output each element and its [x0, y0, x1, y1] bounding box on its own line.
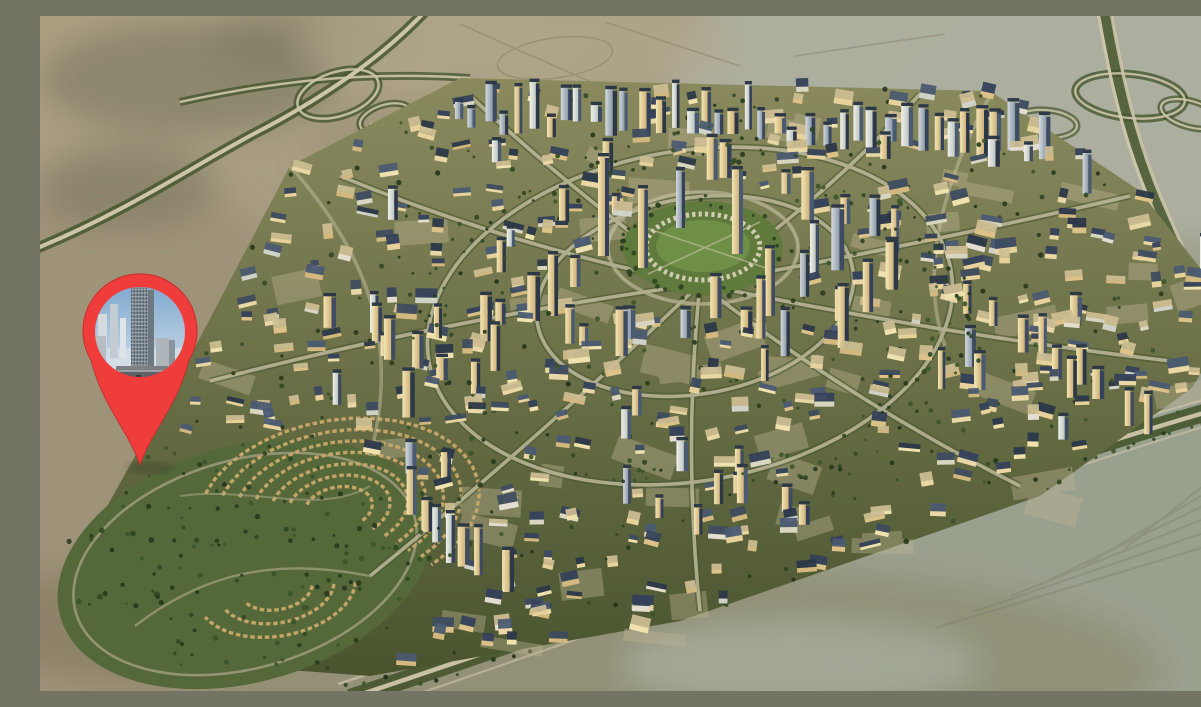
building: [530, 472, 549, 482]
building: [1175, 382, 1188, 393]
tower: [938, 347, 945, 389]
building: [350, 279, 362, 295]
tower: [974, 350, 986, 390]
building: [951, 408, 971, 423]
building: [787, 140, 808, 153]
building: [418, 215, 429, 223]
building: [507, 631, 517, 644]
tower: [432, 504, 441, 543]
building: [347, 394, 356, 408]
tower: [756, 275, 765, 338]
building: [272, 318, 287, 334]
main-tower: [131, 288, 148, 370]
building: [567, 348, 590, 364]
building: [419, 417, 431, 425]
tower: [831, 204, 844, 270]
building: [700, 367, 721, 379]
building: [517, 312, 533, 323]
tower: [388, 185, 398, 219]
tower: [838, 283, 849, 348]
building: [430, 243, 442, 256]
building: [1045, 146, 1054, 161]
tower: [598, 153, 609, 256]
tower: [407, 466, 417, 515]
tower: [761, 345, 769, 381]
building: [792, 166, 802, 178]
building: [919, 83, 937, 100]
building: [1151, 271, 1162, 287]
building: [328, 354, 340, 362]
building: [833, 89, 854, 106]
building: [1075, 395, 1090, 405]
building: [611, 169, 626, 179]
building: [209, 340, 222, 352]
tower: [455, 99, 463, 120]
building: [491, 401, 509, 411]
building: [481, 632, 494, 646]
tower: [616, 306, 628, 356]
tower: [1125, 387, 1134, 426]
tower: [732, 166, 743, 254]
building: [1185, 266, 1201, 283]
tower: [707, 134, 718, 180]
tower: [656, 96, 666, 133]
building: [999, 249, 1010, 264]
tower: [1018, 315, 1029, 353]
background-tower: [120, 318, 126, 358]
building: [453, 187, 471, 196]
tower: [801, 167, 814, 220]
building: [284, 187, 297, 197]
tower: [901, 103, 913, 147]
building: [1027, 432, 1039, 447]
tower: [559, 185, 569, 222]
tower: [619, 88, 627, 131]
building: [322, 223, 333, 239]
building: [724, 526, 743, 544]
building: [432, 258, 445, 266]
building: [878, 426, 889, 433]
building: [396, 303, 418, 319]
tower: [870, 195, 881, 237]
building: [1173, 265, 1185, 278]
building: [462, 339, 472, 353]
building: [858, 228, 870, 238]
building: [293, 363, 308, 372]
tower: [623, 465, 631, 504]
tower: [781, 307, 790, 357]
building: [898, 328, 917, 339]
tower: [384, 315, 396, 360]
tower: [676, 167, 685, 228]
tower: [714, 470, 723, 505]
tower: [960, 108, 969, 153]
building: [1036, 352, 1054, 365]
tower: [935, 113, 944, 151]
building: [747, 540, 757, 552]
building: [542, 154, 554, 165]
building: [524, 533, 539, 542]
tower: [372, 303, 382, 342]
building: [437, 110, 450, 119]
tower: [530, 79, 540, 129]
building: [1064, 315, 1081, 328]
building: [386, 233, 401, 250]
building: [968, 388, 979, 397]
building: [1045, 246, 1058, 260]
tower: [1083, 150, 1092, 194]
building: [582, 382, 595, 394]
tower: [800, 250, 809, 297]
building: [485, 588, 503, 605]
building: [777, 152, 799, 165]
building: [556, 435, 571, 449]
building: [1026, 382, 1043, 391]
tower: [434, 303, 442, 338]
building: [396, 653, 417, 667]
tower: [866, 107, 877, 148]
building: [930, 503, 946, 516]
building: [720, 340, 732, 349]
aerial-masterplan-render: [40, 16, 1201, 691]
tower: [402, 367, 414, 417]
building: [711, 564, 721, 574]
building: [366, 402, 378, 416]
building: [549, 631, 568, 643]
tower: [765, 245, 775, 316]
building: [364, 341, 376, 349]
building: [418, 467, 429, 479]
building: [1011, 386, 1029, 401]
building: [387, 287, 397, 302]
tower: [745, 81, 752, 129]
tower: [710, 273, 722, 318]
building: [639, 156, 654, 167]
building: [489, 519, 508, 527]
building: [537, 259, 547, 270]
building: [793, 93, 804, 104]
building: [632, 488, 643, 497]
building: [807, 149, 826, 160]
tower: [548, 251, 558, 316]
tower: [638, 185, 648, 268]
building: [635, 444, 645, 453]
tower: [672, 80, 679, 128]
tower: [886, 239, 898, 290]
tower: [412, 331, 424, 369]
building: [995, 461, 1011, 473]
building: [1184, 282, 1201, 290]
building: [852, 271, 863, 284]
background-building: [156, 338, 169, 368]
building: [925, 234, 938, 242]
tower: [948, 118, 959, 157]
building: [555, 221, 568, 228]
building: [937, 452, 955, 465]
tower: [474, 524, 483, 575]
tower: [497, 237, 506, 272]
building: [919, 471, 934, 487]
tower: [324, 293, 337, 328]
tower: [515, 83, 523, 134]
building: [190, 396, 201, 404]
building: [796, 78, 809, 92]
building: [496, 160, 511, 169]
building: [632, 128, 650, 142]
building: [632, 329, 648, 345]
building: [742, 327, 754, 338]
building: [1106, 275, 1126, 284]
building: [946, 246, 968, 258]
building: [1049, 228, 1059, 240]
tower: [421, 497, 432, 532]
building: [289, 394, 300, 405]
building: [825, 143, 838, 159]
building: [432, 218, 444, 233]
building: [529, 512, 544, 525]
building: [731, 397, 748, 412]
tower: [502, 547, 514, 592]
tower: [1067, 356, 1077, 398]
building: [241, 311, 252, 320]
building: [565, 507, 578, 520]
building: [1188, 367, 1200, 375]
building: [1028, 404, 1039, 420]
tower: [480, 292, 492, 342]
building: [814, 393, 834, 407]
building: [871, 411, 887, 428]
building: [1064, 269, 1082, 281]
tower: [1144, 391, 1153, 435]
tower: [507, 225, 515, 246]
tower: [840, 109, 849, 149]
building: [542, 219, 554, 233]
building: [226, 415, 244, 423]
building: [1072, 218, 1086, 233]
building: [508, 148, 518, 160]
tower: [565, 304, 574, 344]
building: [866, 147, 883, 157]
tower: [853, 102, 863, 141]
building: [356, 418, 372, 430]
building: [776, 468, 789, 477]
building: [1013, 447, 1025, 459]
tower: [573, 84, 581, 121]
building: [1179, 310, 1193, 322]
building: [491, 199, 504, 211]
tower: [863, 259, 873, 313]
tower: [810, 220, 819, 278]
building: [613, 201, 633, 217]
building: [719, 591, 728, 604]
tower: [1076, 344, 1086, 385]
building: [1152, 242, 1161, 251]
tower: [918, 104, 928, 151]
building: [832, 538, 846, 552]
building: [1049, 369, 1058, 381]
tower: [591, 102, 602, 122]
building: [308, 341, 326, 351]
tower: [486, 81, 497, 122]
background-tower: [110, 304, 118, 358]
building: [714, 456, 735, 466]
tower: [737, 464, 748, 503]
tower: [491, 321, 501, 371]
building: [632, 596, 651, 612]
building: [607, 555, 619, 567]
building: [434, 147, 449, 162]
tower: [1024, 141, 1033, 161]
building: [1134, 371, 1147, 379]
building: [992, 417, 1004, 429]
tower: [561, 84, 573, 120]
building: [780, 518, 798, 533]
tower: [605, 86, 617, 136]
tower: [976, 105, 988, 156]
building: [810, 355, 823, 369]
tower: [333, 369, 342, 404]
building: [796, 559, 817, 572]
tower: [676, 437, 688, 471]
building: [911, 313, 921, 324]
building: [1059, 208, 1077, 219]
tower: [775, 113, 787, 133]
building: [775, 416, 792, 431]
